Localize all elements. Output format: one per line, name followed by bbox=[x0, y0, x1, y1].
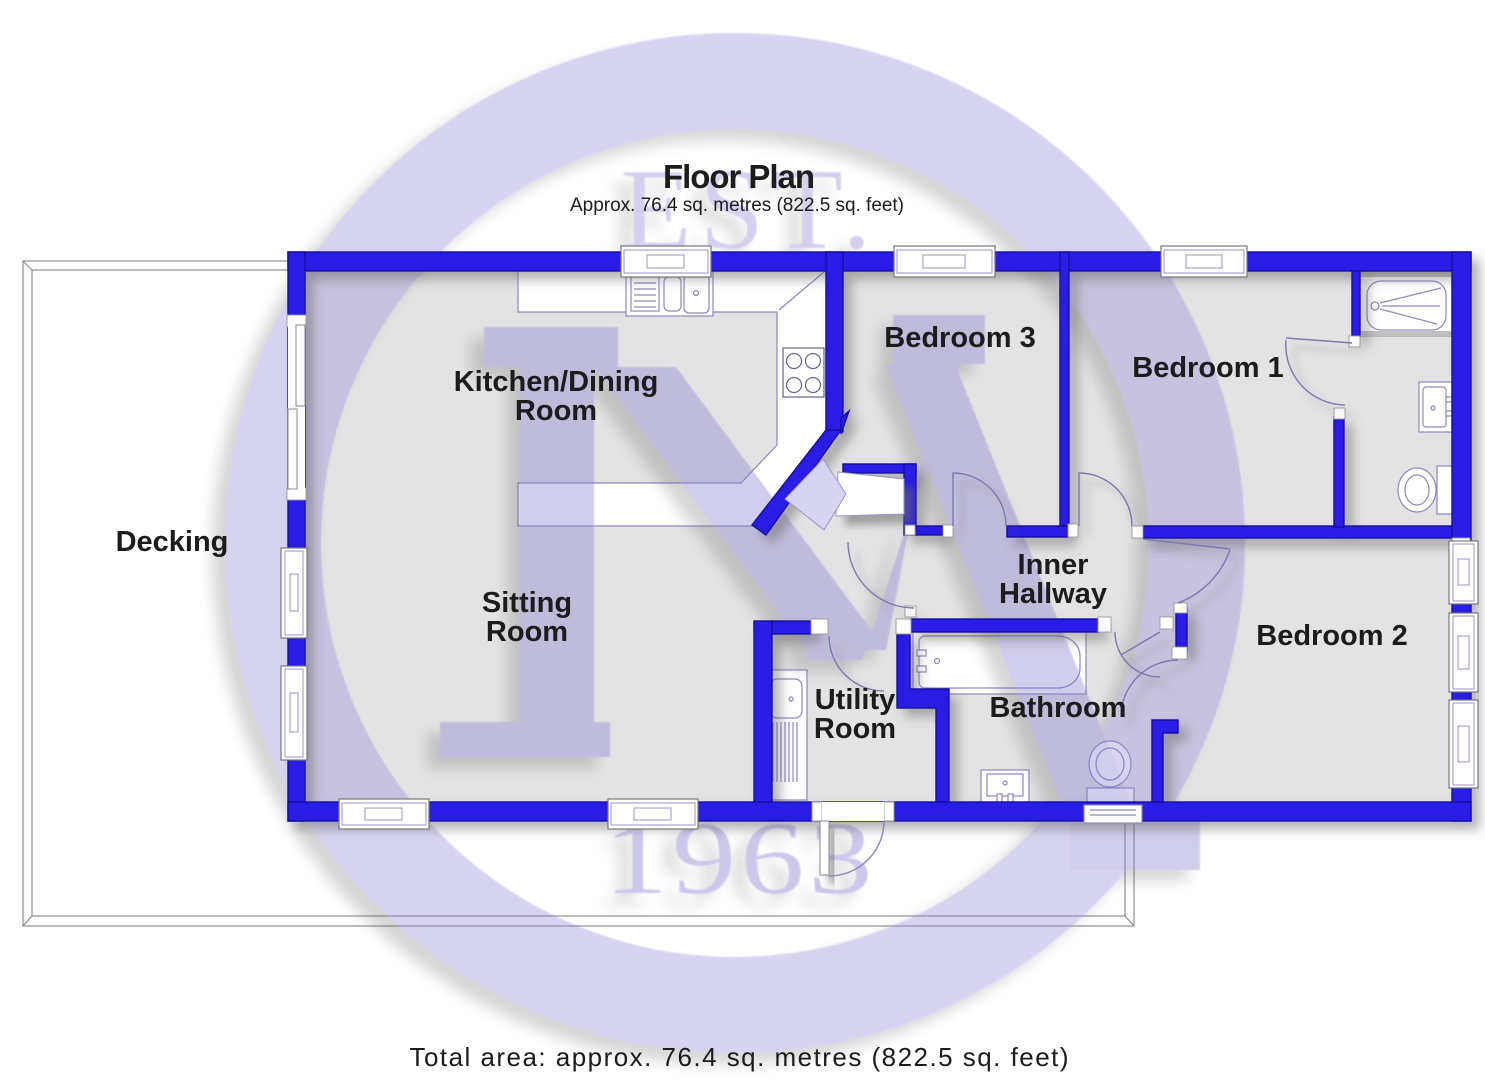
svg-text:Inner: Inner bbox=[1018, 549, 1089, 581]
svg-text:Floor Plan: Floor Plan bbox=[663, 158, 815, 195]
svg-text:Bedroom 2: Bedroom 2 bbox=[1256, 620, 1407, 652]
svg-text:Room: Room bbox=[814, 713, 896, 745]
svg-text:Kitchen/Dining: Kitchen/Dining bbox=[454, 366, 659, 398]
svg-text:Hallway: Hallway bbox=[999, 578, 1107, 610]
svg-text:Bathroom: Bathroom bbox=[990, 692, 1127, 724]
svg-text:Room: Room bbox=[515, 395, 597, 427]
svg-text:Sitting: Sitting bbox=[482, 587, 572, 619]
svg-text:Decking: Decking bbox=[116, 526, 229, 558]
svg-text:Bedroom 3: Bedroom 3 bbox=[884, 322, 1035, 354]
svg-text:Utility: Utility bbox=[815, 684, 896, 716]
svg-text:Total area: approx. 76.4 sq. m: Total area: approx. 76.4 sq. metres (822… bbox=[410, 1042, 1069, 1072]
svg-text:Approx. 76.4 sq. metres (822.5: Approx. 76.4 sq. metres (822.5 sq. feet) bbox=[570, 195, 904, 216]
svg-text:Room: Room bbox=[486, 616, 568, 648]
svg-text:Bedroom 1: Bedroom 1 bbox=[1132, 352, 1283, 384]
